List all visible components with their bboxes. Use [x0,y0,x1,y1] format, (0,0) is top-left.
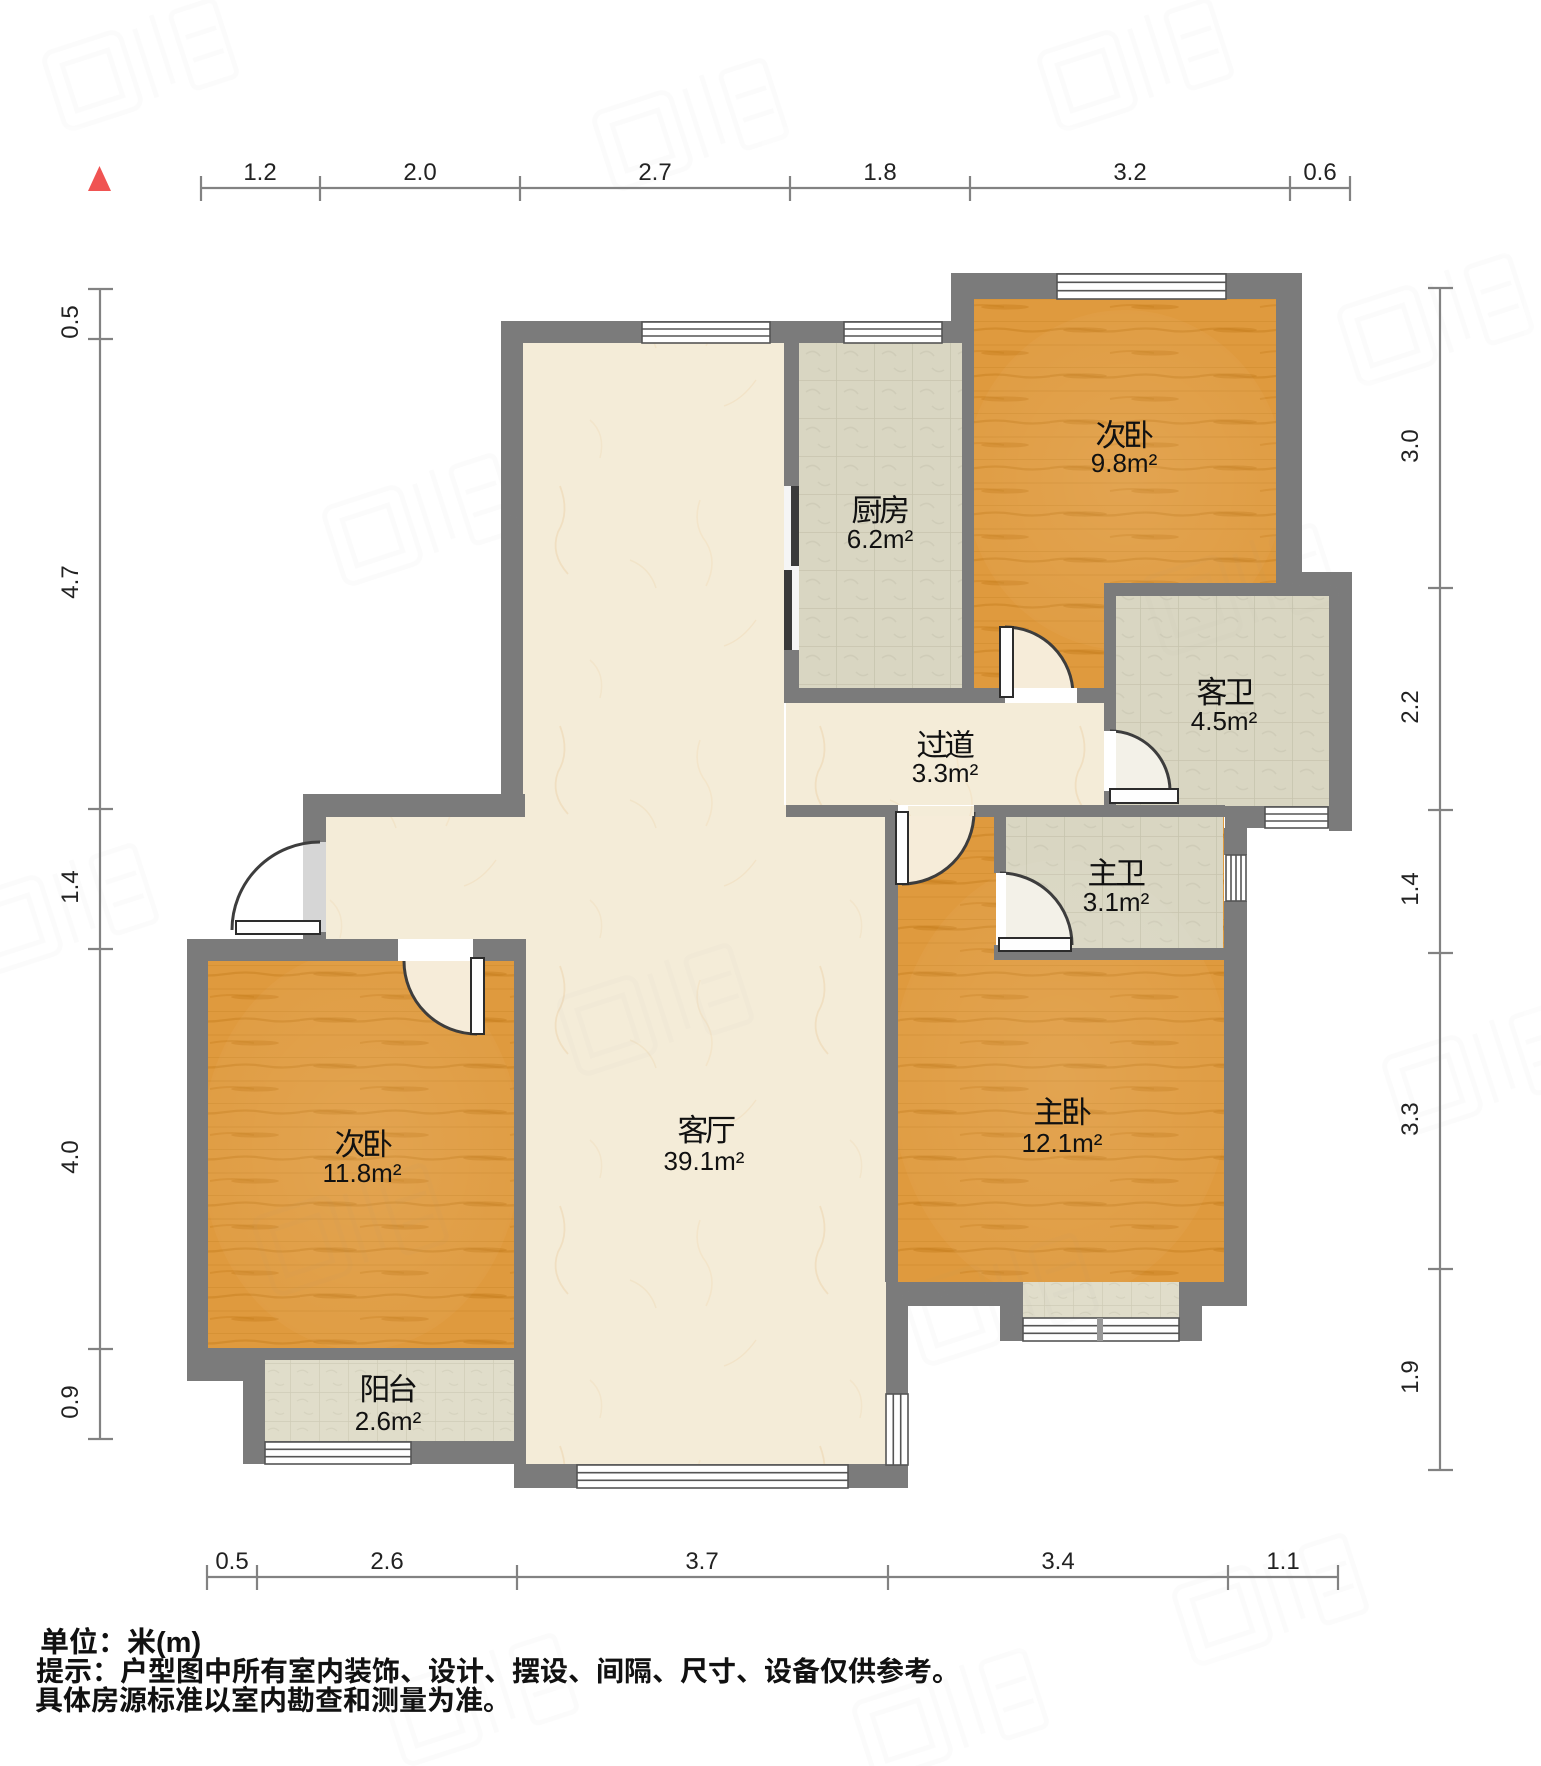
svg-text:4.5m²: 4.5m² [1191,706,1258,736]
svg-text:2.6: 2.6 [370,1548,403,1575]
svg-text:4.7: 4.7 [57,565,84,598]
svg-text:1.8: 1.8 [863,159,896,186]
svg-text:39.1m²: 39.1m² [664,1146,745,1176]
svg-text:1.9: 1.9 [1397,1360,1424,1393]
svg-text:0.5: 0.5 [57,305,84,338]
svg-text:12.1m²: 12.1m² [1022,1128,1103,1158]
svg-text:2.6m²: 2.6m² [355,1406,422,1436]
svg-text:3.3m²: 3.3m² [912,758,979,788]
svg-text:1.4: 1.4 [1397,872,1424,905]
svg-text:1.2: 1.2 [243,159,276,186]
svg-text:2.0: 2.0 [403,159,436,186]
svg-text:0.9: 0.9 [57,1385,84,1418]
svg-text:4.0: 4.0 [57,1140,84,1173]
svg-text:0.6: 0.6 [1303,159,1336,186]
svg-text:3.4: 3.4 [1041,1548,1074,1575]
svg-text:2.2: 2.2 [1397,690,1424,723]
svg-text:0.5: 0.5 [215,1548,248,1575]
svg-text:3.2: 3.2 [1113,159,1146,186]
svg-text:3.7: 3.7 [685,1548,718,1575]
svg-text:3.0: 3.0 [1397,429,1424,462]
svg-text:9.8m²: 9.8m² [1091,448,1158,478]
svg-text:6.2m²: 6.2m² [847,524,914,554]
svg-text:3.1m²: 3.1m² [1083,887,1150,917]
svg-text:(m): (m) [156,1627,201,1659]
